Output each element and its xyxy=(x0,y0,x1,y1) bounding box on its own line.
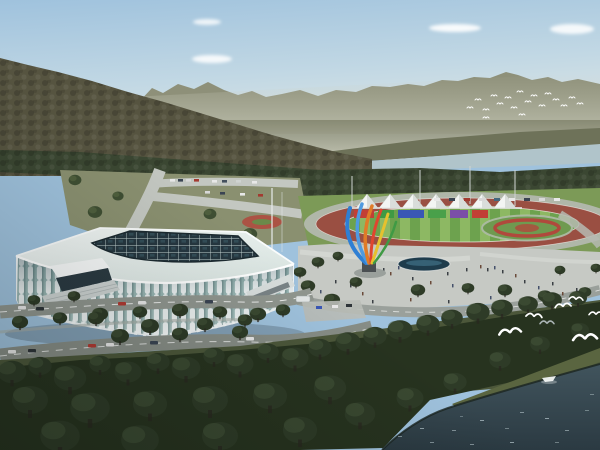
vignette xyxy=(0,0,600,450)
rendering-canvas xyxy=(0,0,600,450)
